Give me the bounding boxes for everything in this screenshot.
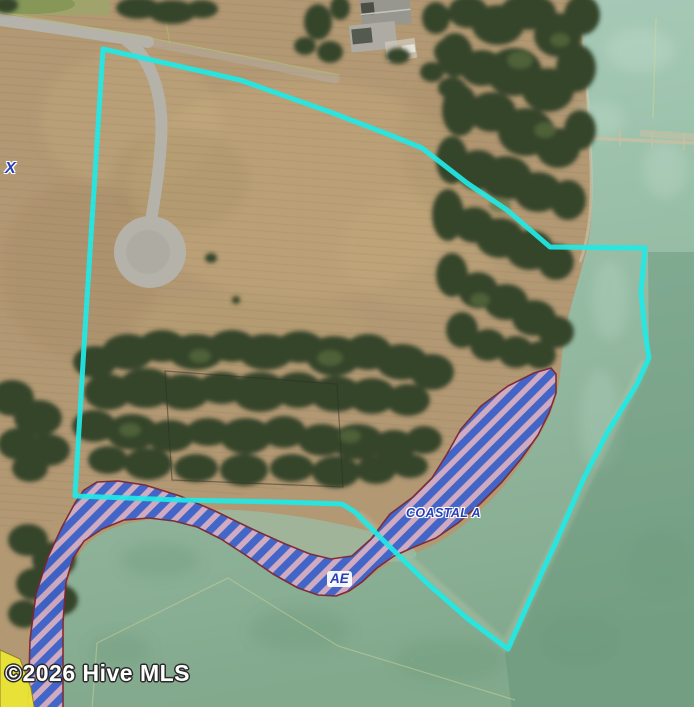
flood-zone-aerial-map: X COASTAL A AE ©2026 Hive MLS xyxy=(0,0,694,707)
flood-zone-label-ae: AE xyxy=(327,571,352,587)
aerial-basemap xyxy=(0,0,694,707)
flood-zone-label-x: X xyxy=(5,161,16,177)
watermark: ©2026 Hive MLS xyxy=(5,662,190,685)
flood-zone-label-coastal-a: COASTAL A xyxy=(406,507,481,520)
cul-de-sac-center xyxy=(126,230,170,274)
